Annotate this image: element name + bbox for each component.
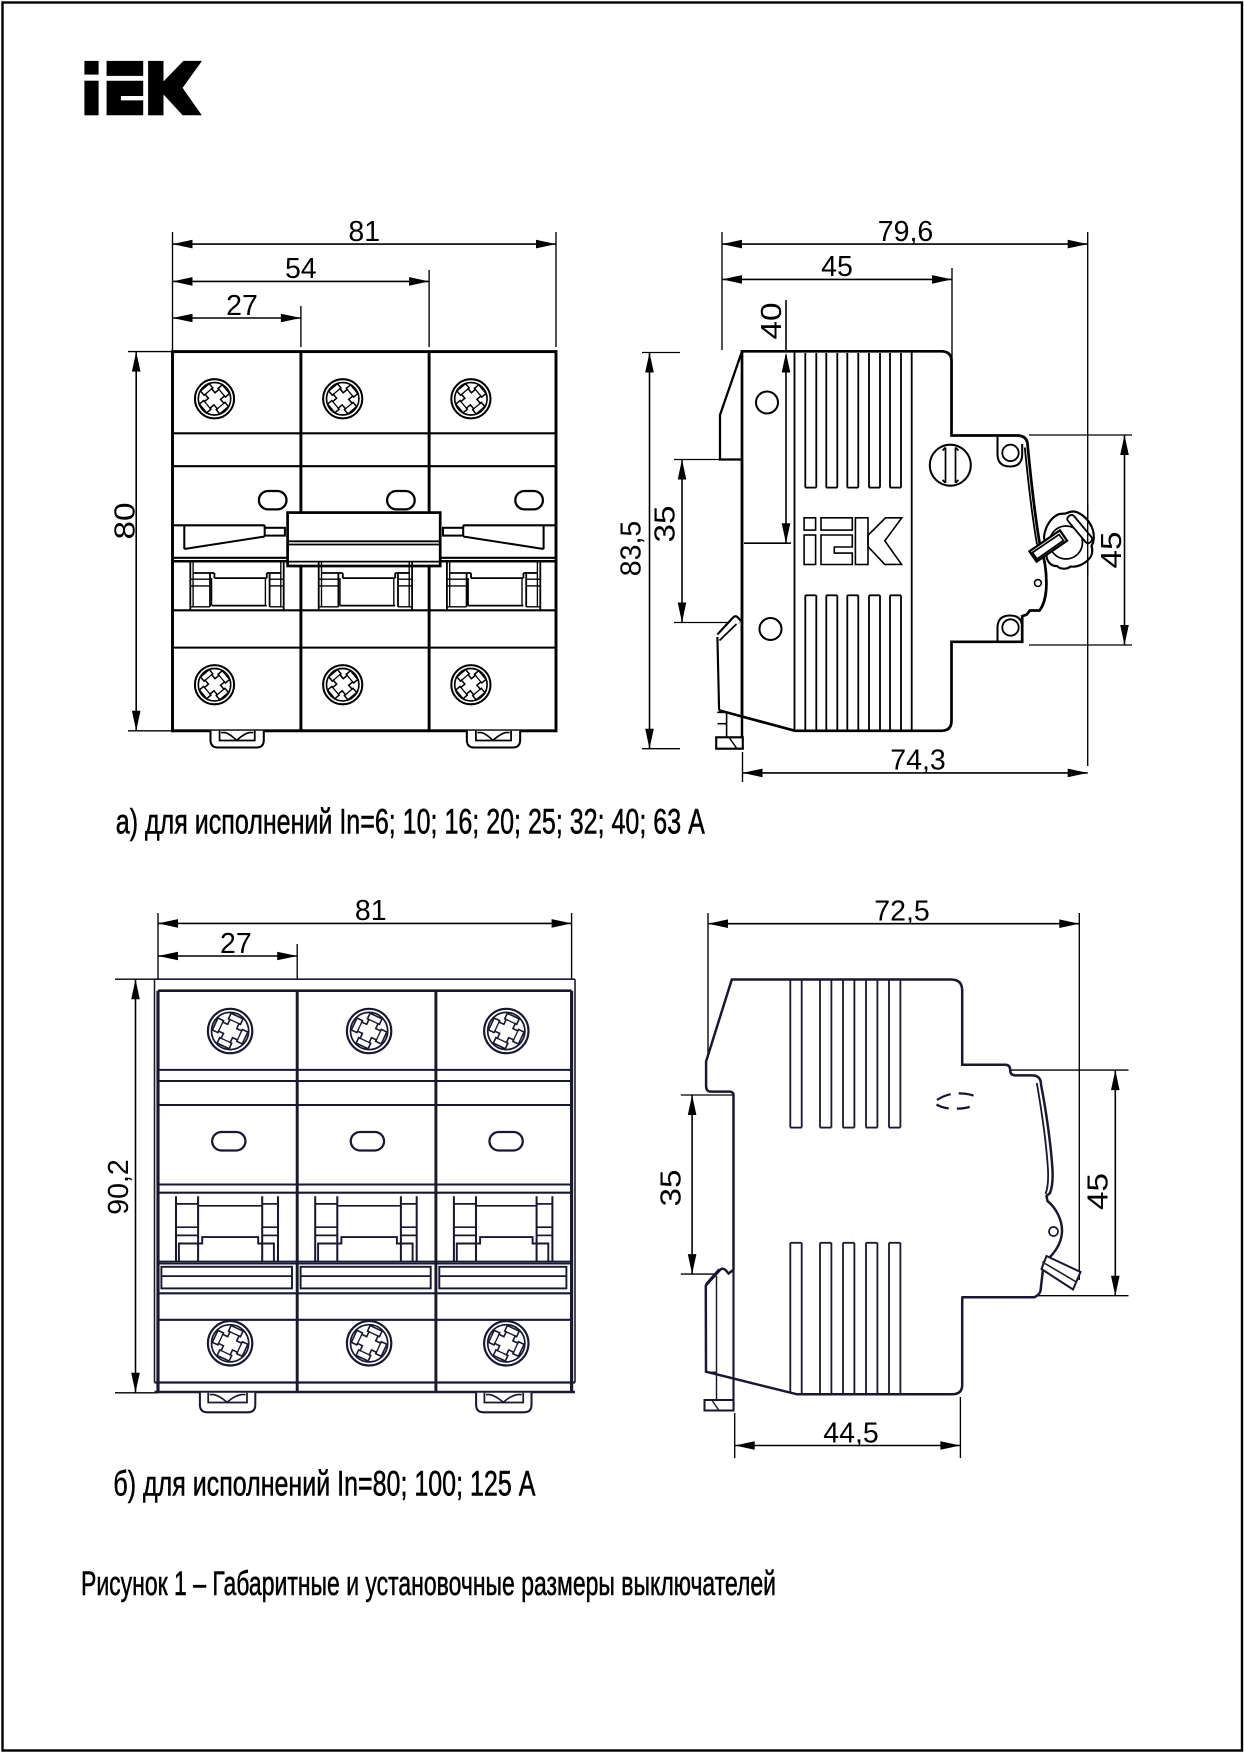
svg-text:Рисунок 1 – Габаритные и устан: Рисунок 1 – Габаритные и установочные ра…	[81, 1565, 776, 1603]
svg-text:45: 45	[821, 251, 853, 283]
svg-text:27: 27	[220, 928, 252, 960]
svg-text:79,6: 79,6	[878, 216, 933, 248]
svg-text:81: 81	[355, 895, 387, 927]
svg-text:35: 35	[650, 506, 682, 543]
svg-text:80: 80	[110, 503, 142, 540]
svg-text:45: 45	[1083, 1173, 1115, 1210]
svg-text:44,5: 44,5	[823, 1417, 878, 1449]
svg-text:74,3: 74,3	[890, 745, 945, 777]
svg-text:45: 45	[1096, 532, 1128, 569]
svg-text:81: 81	[348, 216, 380, 248]
svg-text:б) для исполнений In=80; 100;: б) для исполнений In=80; 100; 125 А	[113, 1465, 535, 1504]
svg-text:90,2: 90,2	[103, 1159, 135, 1214]
svg-text:27: 27	[226, 290, 258, 322]
svg-text:54: 54	[285, 253, 317, 285]
svg-text:а) для исполнений In=6; 10; 16: а) для исполнений In=6; 10; 16; 20; 25; …	[116, 803, 705, 842]
svg-text:83,5: 83,5	[616, 521, 648, 576]
svg-text:35: 35	[656, 1170, 688, 1207]
svg-text:72,5: 72,5	[874, 896, 929, 928]
svg-text:40: 40	[756, 303, 788, 340]
